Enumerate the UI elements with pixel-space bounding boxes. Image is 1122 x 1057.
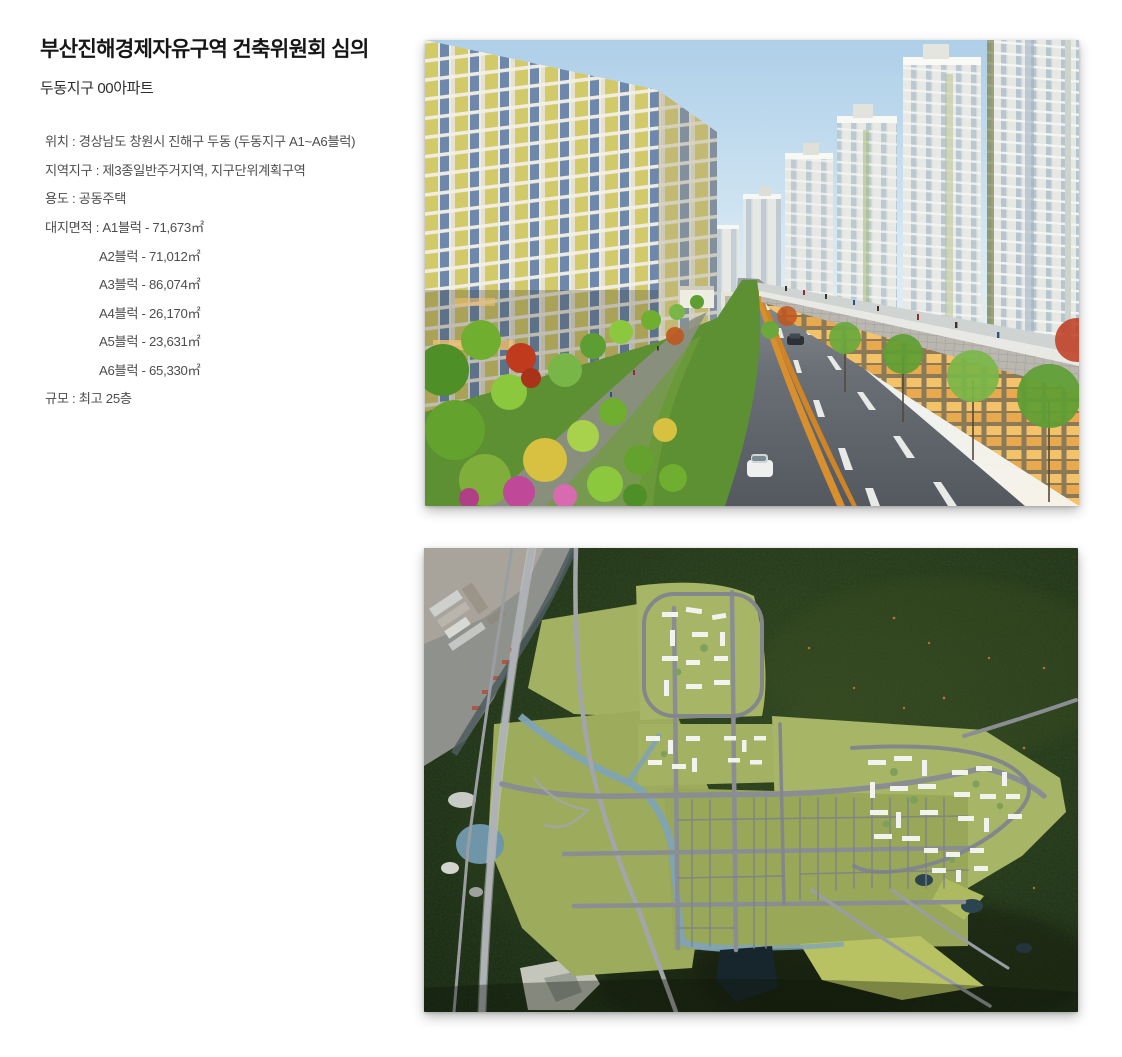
aerial-masterplan: [424, 548, 1078, 1012]
page-subtitle: 두동지구 00아파트: [40, 77, 412, 98]
project-summary: 부산진해경제자유구역 건축위원회 심의 두동지구 00아파트 위치 : 경상남도…: [40, 38, 412, 414]
info-line-area-a3: A3블럭 - 86,074㎡: [40, 271, 412, 300]
street-level-rendering: [425, 40, 1079, 506]
info-line-location: 위치 : 경상남도 창원시 진해구 두동 (두동지구 A1~A6블럭): [40, 128, 412, 157]
info-line-area-a2: A2블럭 - 71,012㎡: [40, 243, 412, 272]
info-line-area-a5: A5블럭 - 23,631㎡: [40, 328, 412, 357]
info-line-scale: 규모 : 최고 25층: [40, 385, 412, 414]
info-line-area-a4: A4블럭 - 26,170㎡: [40, 300, 412, 329]
document-page: 부산진해경제자유구역 건축위원회 심의 두동지구 00아파트 위치 : 경상남도…: [0, 0, 1122, 1057]
page-title: 부산진해경제자유구역 건축위원회 심의: [40, 38, 412, 62]
aerial-art: [424, 548, 1078, 1012]
project-info-list: 위치 : 경상남도 창원시 진해구 두동 (두동지구 A1~A6블럭) 지역지구…: [40, 128, 412, 414]
info-line-area-a1: 대지면적 : A1블럭 - 71,673㎡: [40, 214, 412, 243]
info-line-use: 용도 : 공동주택: [40, 185, 412, 214]
street-rendering-art: [425, 40, 1079, 506]
info-line-zoning: 지역지구 : 제3종일반주거지역, 지구단위계획구역: [40, 157, 412, 186]
info-line-area-a6: A6블럭 - 65,330㎡: [40, 357, 412, 386]
